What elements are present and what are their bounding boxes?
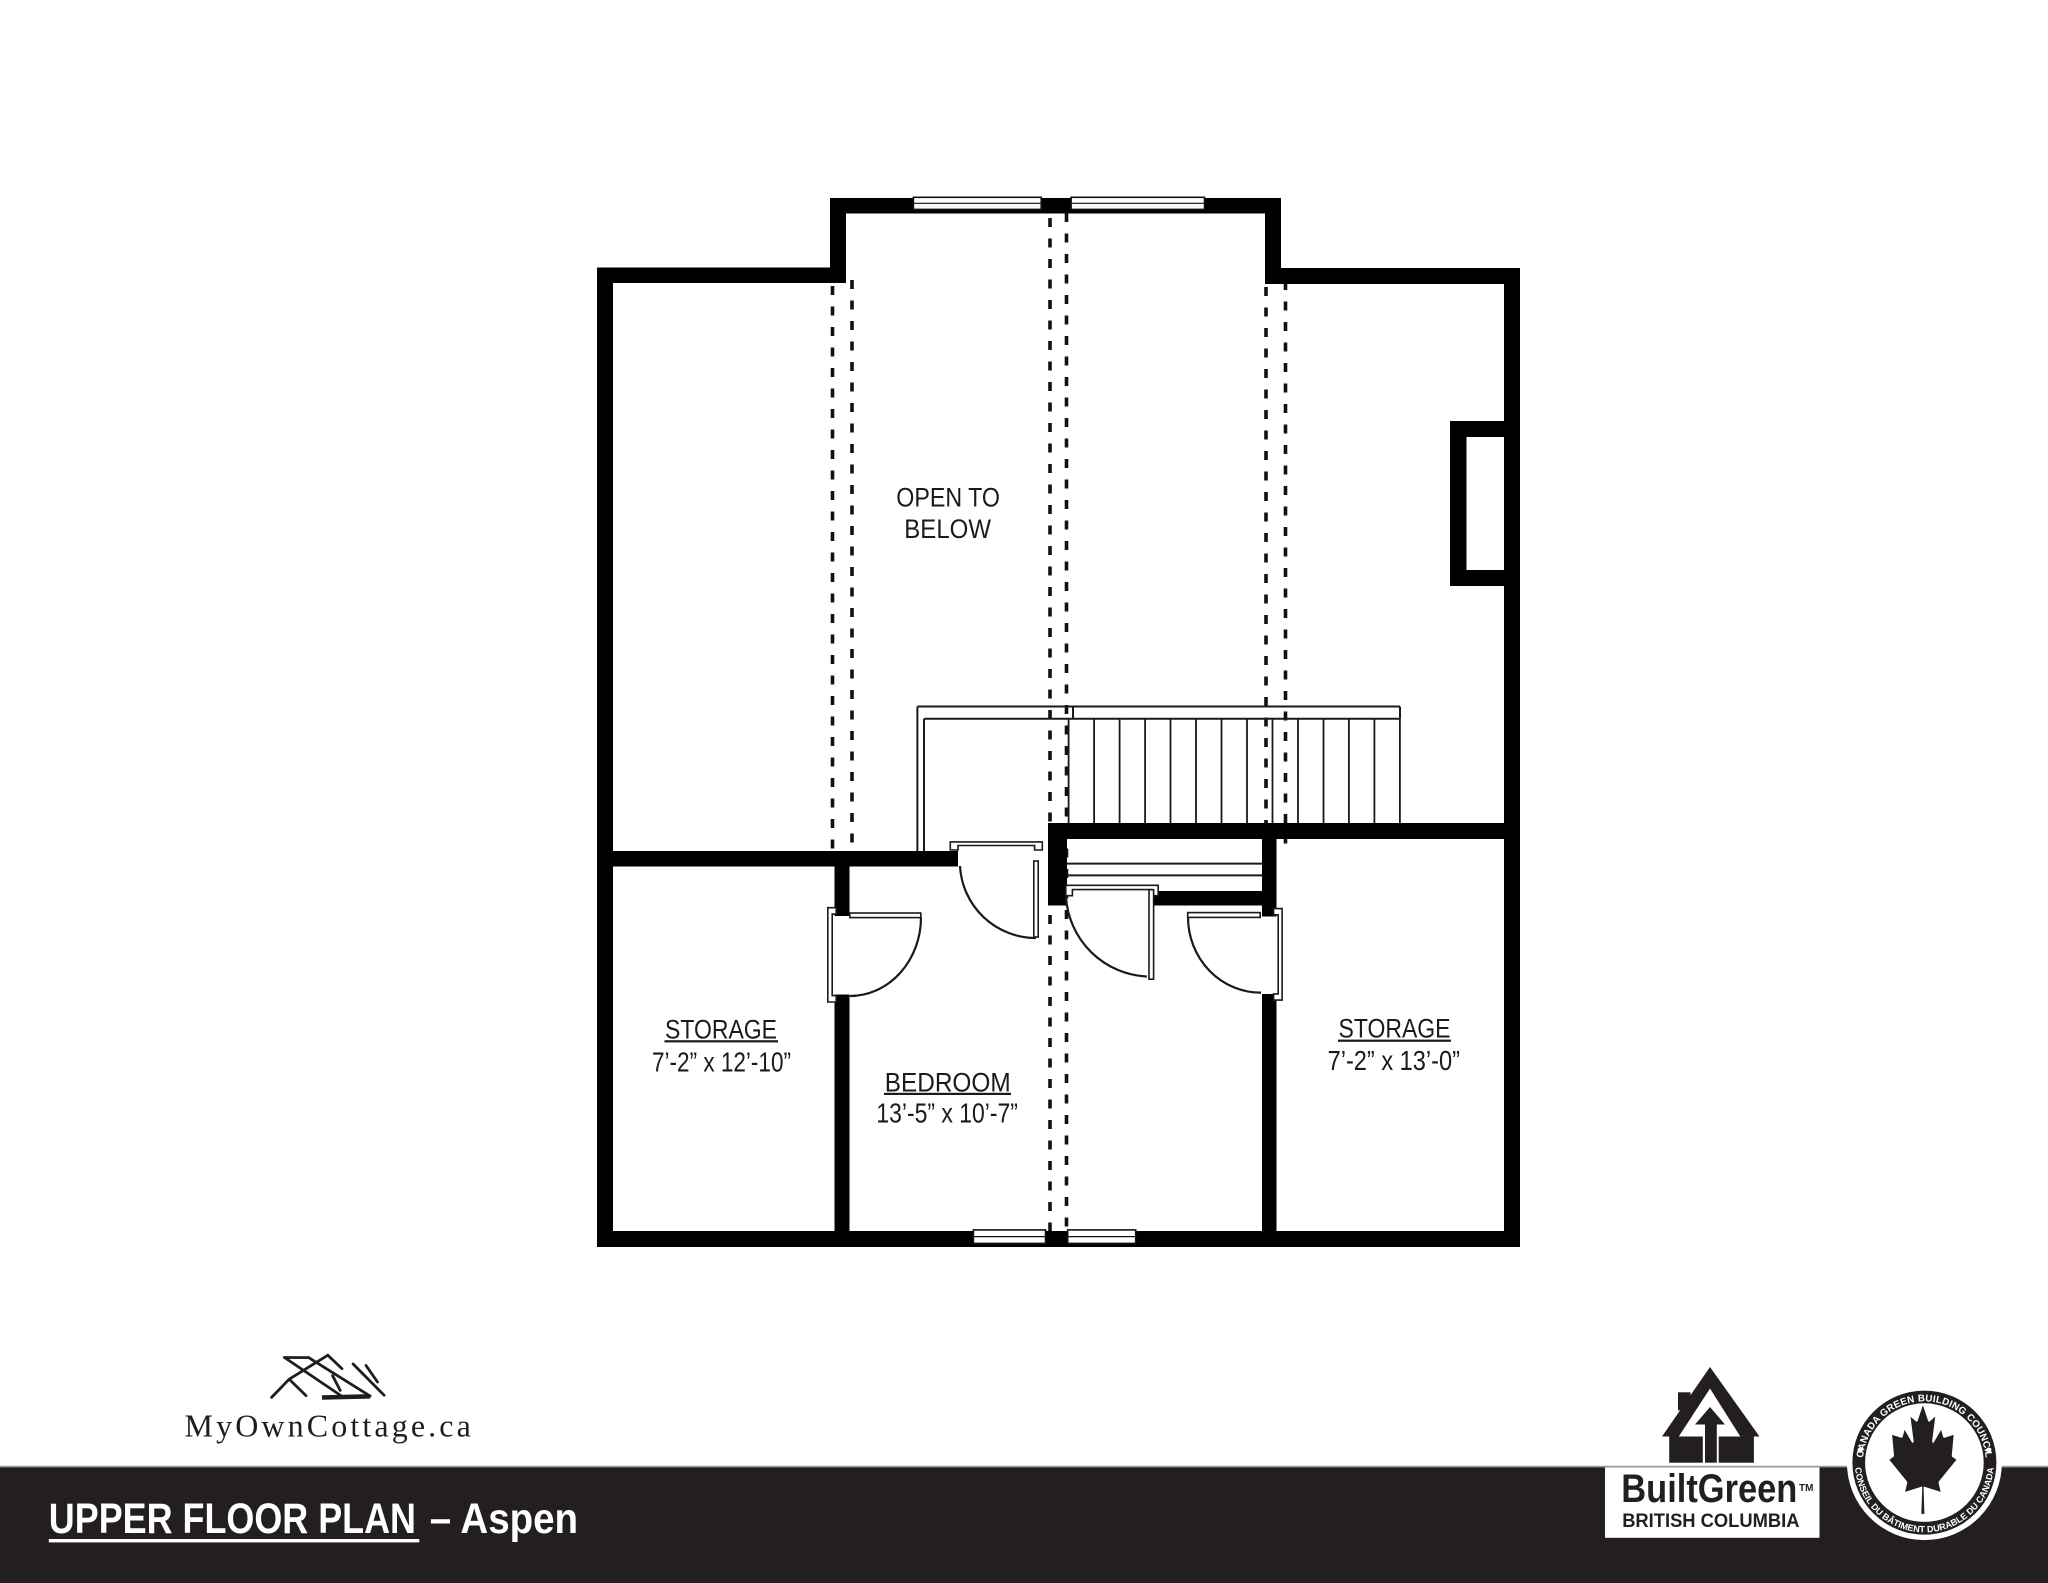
svg-text:BRITISH COLUMBIA: BRITISH COLUMBIA — [1622, 1510, 1799, 1532]
svg-text:BuiltGreen: BuiltGreen — [1621, 1467, 1797, 1511]
svg-text:MyOwnCottage.ca: MyOwnCottage.ca — [185, 1408, 471, 1444]
svg-text:7’-2” x 13’-0”: 7’-2” x 13’-0” — [1328, 1045, 1460, 1076]
svg-text:STORAGE: STORAGE — [665, 1014, 777, 1044]
svg-text:STORAGE: STORAGE — [1339, 1014, 1451, 1044]
svg-text:13’-5” x 10’-7”: 13’-5” x 10’-7” — [876, 1097, 1018, 1128]
svg-text:– Aspen: – Aspen — [430, 1496, 578, 1543]
svg-text:BELOW: BELOW — [904, 514, 991, 544]
svg-text:OPEN TO: OPEN TO — [896, 482, 1000, 512]
svg-text:UPPER FLOOR PLAN: UPPER FLOOR PLAN — [49, 1496, 416, 1543]
svg-text:7’-2” x 12’-10”: 7’-2” x 12’-10” — [652, 1046, 791, 1077]
svg-text:TM: TM — [1799, 1483, 1813, 1494]
